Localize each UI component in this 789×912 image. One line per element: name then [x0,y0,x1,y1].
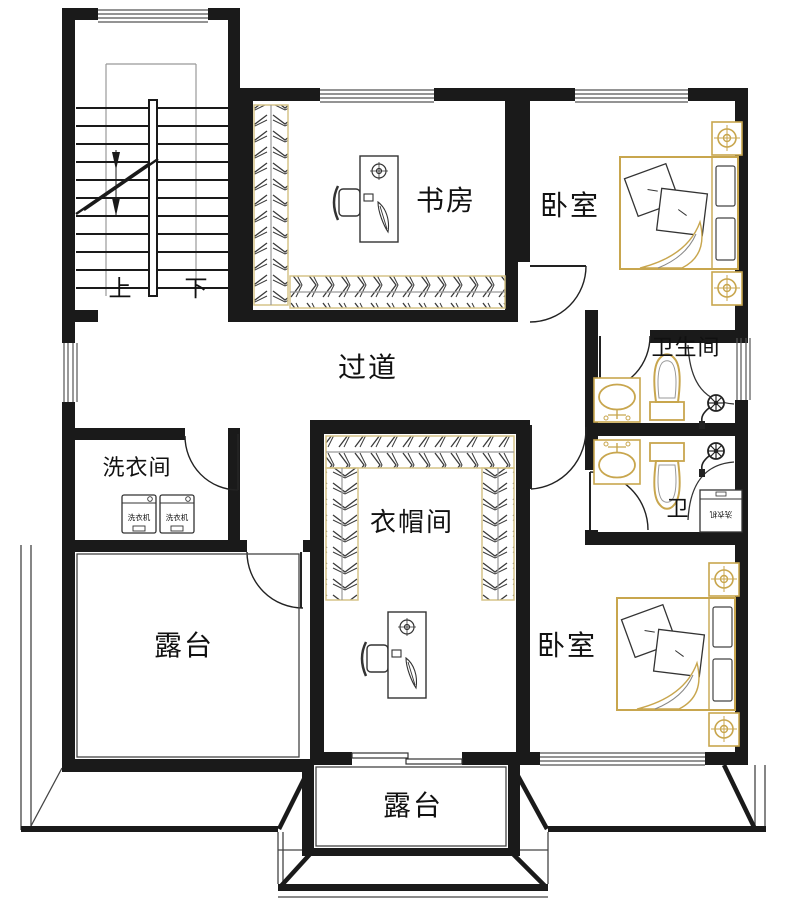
label-cloakroom: 衣帽间 [370,507,454,537]
label-bedroom-bottom: 卧室 [537,630,597,661]
wall-left-upper [62,8,75,343]
toilet-cabinet: 洗衣机 [700,490,742,532]
window-stairwell-top [98,10,208,22]
walls [62,8,748,856]
stair-up-label: 上 [109,275,132,301]
label-terrace-left: 露台 [154,630,214,661]
roof-eave-bands [21,826,766,891]
window-bathroom-right [737,338,750,400]
floor-plan-page: 上 下 洗衣机 洗衣机 [0,0,789,912]
door-bedroom-top [530,266,586,322]
label-terrace-bottom: 露台 [383,790,443,821]
sliding-door-terrace [352,753,462,764]
label-toilet: 卫 [666,496,689,521]
window-corridor-left [64,343,77,402]
study-desk [334,156,398,242]
label-bedroom-top: 卧室 [540,190,600,221]
toilet-cabinet-label: 洗衣机 [709,510,732,520]
window-study [320,90,434,102]
window-bedroom-bottom [540,753,705,765]
label-bathroom: 卫生间 [651,335,720,360]
label-corridor: 过道 [338,352,398,383]
stairs: 上 下 [76,64,228,301]
label-study: 书房 [416,185,476,216]
toilet-upper [650,354,684,420]
window-bedroom-top [575,90,688,102]
stair-rail [149,100,157,296]
shower-head-lower [699,443,724,477]
bed-top [620,122,742,305]
floor-plan-canvas: 上 下 洗衣机 洗衣机 [0,0,789,912]
washer-2-label: 洗衣机 [166,512,189,522]
sink-lower [594,440,640,484]
stair-down-label: 下 [185,275,208,301]
washer-1-label: 洗衣机 [128,512,151,522]
stair-break-symbol [76,150,158,216]
sink-upper [594,378,640,422]
door-lobby [531,425,586,489]
cloakroom-desk [362,612,426,698]
bed-bottom [617,563,739,746]
label-laundry: 洗衣间 [102,455,171,480]
door-terrace-left [247,552,303,608]
